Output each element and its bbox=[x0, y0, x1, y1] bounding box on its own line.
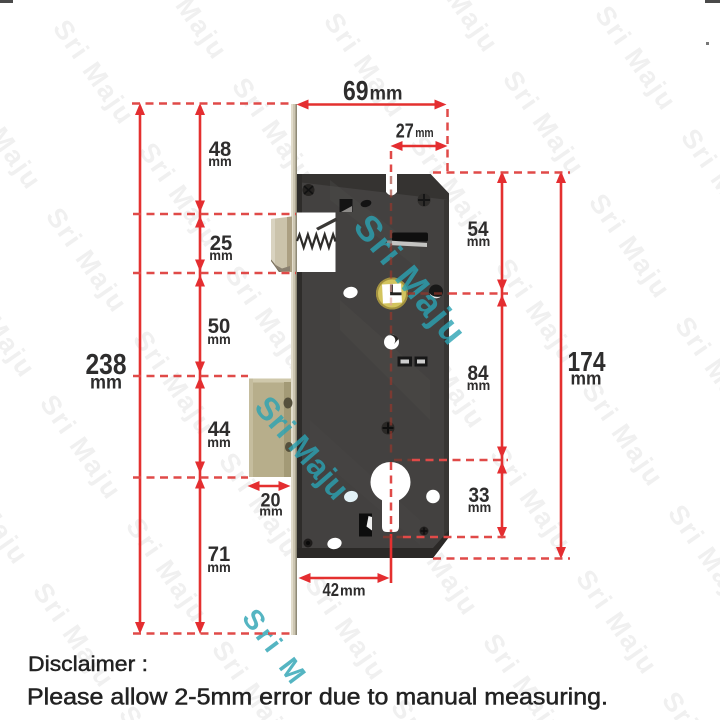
svg-text:mm: mm bbox=[259, 504, 283, 519]
svg-text:mm: mm bbox=[370, 83, 403, 105]
svg-text:Sri Maju: Sri Maju bbox=[589, 0, 683, 116]
svg-text:mm: mm bbox=[340, 584, 366, 600]
svg-text:mm: mm bbox=[90, 373, 122, 394]
svg-text:Sri Maju: Sri Maju bbox=[318, 7, 412, 123]
svg-text:mm: mm bbox=[207, 559, 231, 575]
svg-text:Sri Maju: Sri Maju bbox=[576, 376, 670, 492]
svg-text:Sri Maju: Sri Maju bbox=[656, 686, 720, 720]
svg-text:27: 27 bbox=[396, 120, 414, 142]
svg-text:mm: mm bbox=[467, 377, 491, 393]
svg-text:Sri Maju: Sri Maju bbox=[0, 267, 42, 383]
svg-text:Sri Maju: Sri Maju bbox=[226, 72, 320, 188]
svg-text:Sri Maju: Sri Maju bbox=[682, 0, 720, 53]
svg-text:Please allow 2-5mm error due t: Please allow 2-5mm error due to manual m… bbox=[27, 684, 608, 710]
svg-text:Sri Maju: Sri Maju bbox=[27, 577, 121, 693]
svg-text:69: 69 bbox=[343, 75, 369, 106]
svg-text:mm: mm bbox=[207, 434, 231, 450]
svg-text:Sri Maju: Sri Maju bbox=[34, 389, 128, 505]
svg-text:Sri Maju: Sri Maju bbox=[40, 202, 134, 318]
svg-text:Sri Maju: Sri Maju bbox=[0, 454, 35, 570]
svg-text:Sri Maju: Sri Maju bbox=[0, 79, 48, 195]
svg-text:Sri Maju: Sri Maju bbox=[497, 65, 591, 181]
svg-text:mm: mm bbox=[415, 125, 434, 140]
svg-text:mm: mm bbox=[467, 233, 491, 249]
svg-text:mm: mm bbox=[208, 153, 232, 169]
svg-text:Sri Maju: Sri Maju bbox=[47, 14, 141, 130]
svg-text:mm: mm bbox=[207, 331, 231, 347]
svg-text:Sri Maju: Sri Maju bbox=[484, 441, 578, 557]
svg-text:42: 42 bbox=[323, 579, 340, 600]
svg-text:Sri Maju: Sri Maju bbox=[675, 123, 720, 239]
svg-text:Sri Maju: Sri Maju bbox=[411, 0, 505, 59]
svg-text:mm: mm bbox=[209, 247, 233, 263]
svg-text:Sri Maju: Sri Maju bbox=[669, 311, 720, 427]
svg-text:Sri Maju: Sri Maju bbox=[570, 564, 664, 680]
svg-text:mm: mm bbox=[571, 369, 602, 389]
svg-text:Sri Maju: Sri Maju bbox=[140, 0, 234, 66]
svg-text:Sri Maju: Sri Maju bbox=[583, 188, 677, 304]
svg-text:mm: mm bbox=[468, 499, 492, 515]
svg-text:Disclaimer :: Disclaimer : bbox=[28, 653, 148, 676]
svg-text:Sri Maju: Sri Maju bbox=[662, 499, 720, 615]
